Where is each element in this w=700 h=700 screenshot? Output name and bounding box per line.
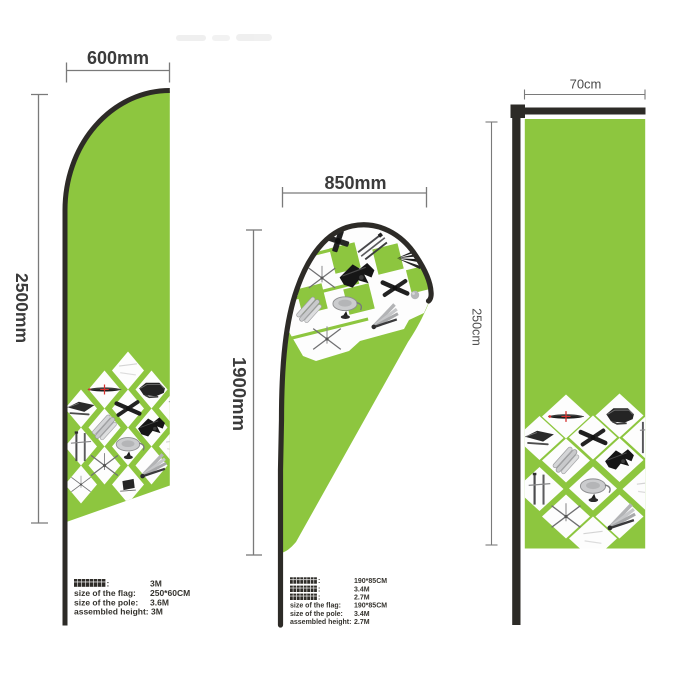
- svg-text:size of the flag:: size of the flag:: [290, 603, 341, 610]
- svg-text:assembled height:: assembled height:: [290, 619, 351, 626]
- svg-text:2.7M: 2.7M: [354, 619, 370, 626]
- svg-text:2500mm: 2500mm: [12, 273, 32, 343]
- svg-text:250cm: 250cm: [470, 308, 484, 346]
- svg-text:1900mm: 1900mm: [229, 357, 250, 431]
- svg-text:3.4M: 3.4M: [354, 611, 370, 618]
- svg-text:size of the pole:: size of the pole:: [290, 611, 343, 618]
- svg-text:assembled height: 3M: assembled height: 3M: [74, 607, 163, 617]
- svg-text:600mm: 600mm: [87, 48, 149, 68]
- svg-text::: :: [318, 587, 320, 594]
- svg-text:850mm: 850mm: [324, 173, 386, 193]
- svg-text:190*85CM: 190*85CM: [354, 578, 387, 585]
- svg-text:3M: 3M: [150, 579, 162, 589]
- svg-text:190*85CM: 190*85CM: [354, 603, 387, 610]
- svg-text::: :: [107, 579, 110, 589]
- svg-text:70cm: 70cm: [570, 77, 602, 92]
- svg-text::: :: [318, 578, 320, 585]
- svg-text:2.7M: 2.7M: [354, 595, 370, 602]
- svg-text::: :: [318, 595, 320, 602]
- svg-text:3.4M: 3.4M: [354, 587, 370, 594]
